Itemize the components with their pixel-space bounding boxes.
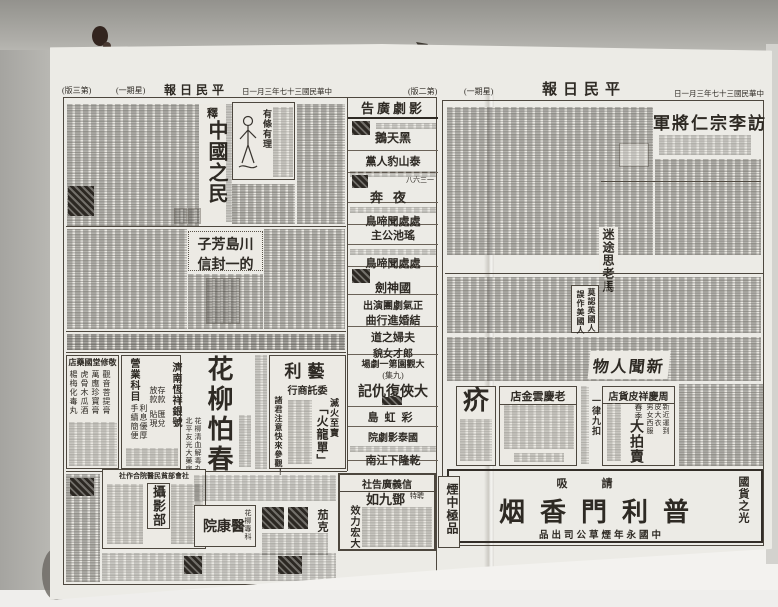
fur-item: 男女西服 bbox=[645, 403, 655, 435]
cigarette-maker: 中國永年煙草公司出品 bbox=[489, 527, 714, 541]
theater-listing: 國神劍 bbox=[348, 267, 438, 295]
right-newspaper-title: 平民日報 bbox=[542, 78, 626, 99]
vd-maker: 北平友光大藥房 bbox=[184, 417, 194, 473]
coop-dept: 攝影部 bbox=[147, 483, 170, 529]
letter-headline-box: 川島芳子 的一封信 bbox=[188, 231, 263, 271]
jacket-text bbox=[262, 533, 328, 555]
body-text bbox=[255, 355, 267, 469]
theater-listing: 泰山豹人黨 bbox=[348, 151, 438, 173]
section-rule bbox=[445, 273, 763, 274]
left-masthead: (第三版) (星期一) 平民日報 中華民國三十七年三月一日 bbox=[60, 82, 438, 96]
fur-store-title: 周慶祥皮貨店 bbox=[603, 388, 674, 404]
theater-listing: 處處聞啼鳥 bbox=[348, 245, 438, 267]
right-weekday: (星期一) bbox=[464, 86, 493, 97]
ad-logo bbox=[184, 556, 202, 574]
bank-item: 放款 bbox=[148, 386, 159, 404]
theater-listing: 瑤池公主 bbox=[348, 225, 438, 245]
pharmacy-product: 虎骨木瓜酒 bbox=[79, 370, 90, 415]
bank-text bbox=[126, 448, 178, 466]
scabies-ad: 疥 bbox=[456, 386, 496, 466]
ad-logo bbox=[70, 478, 94, 496]
body-text bbox=[194, 475, 336, 501]
photo-background-left bbox=[0, 50, 54, 607]
cathay-title: 乾隆下江南 bbox=[350, 452, 436, 468]
left-weekday: (星期一) bbox=[116, 85, 145, 96]
vd-text bbox=[239, 415, 251, 467]
fur-store-ad: 周慶祥皮貨店 新近運到 皮大衣 男女西服 春季 大拍賣 bbox=[602, 386, 675, 466]
name-tag bbox=[188, 208, 201, 224]
headline-column: 釋 中國之民 bbox=[200, 104, 226, 222]
right-page: 訪李宗仁將軍 迷途思老馬 莫認英國人 誤作美國人 新聞人物 疥 老慶雲金店 bbox=[442, 100, 764, 546]
feature-column-header: 新聞人物 bbox=[588, 351, 671, 379]
section-rule bbox=[66, 226, 346, 227]
boxed-insert bbox=[619, 143, 649, 167]
bank-ad: 濟南恆祥銀號 營業科目 存款 匯兌 放款 貼現 利息優厚 手續簡便 bbox=[121, 355, 181, 469]
fur-sale-big: 大拍賣 bbox=[625, 419, 645, 464]
strip-text bbox=[581, 386, 589, 464]
pharmacy-product: 觀音菩提膏 bbox=[101, 370, 112, 415]
body-text bbox=[447, 277, 761, 333]
cigarette-slogan-left-box: 煙中極品 bbox=[438, 476, 460, 548]
letter-headline-line1: 川島芳子 bbox=[189, 234, 262, 254]
cartoon-text bbox=[273, 107, 293, 177]
body-text bbox=[297, 104, 345, 224]
consignment-ad: 藝利 委託商行 滅火至寶 「火龍單」 諸君注意快來參觀！ bbox=[269, 355, 346, 469]
theater-listing: 處處聞啼鳥 bbox=[348, 203, 438, 225]
scabies-text bbox=[460, 419, 492, 461]
clinic-title: 醫康院 bbox=[203, 516, 245, 536]
cigarette-invite: 請吸 bbox=[489, 475, 714, 491]
coop-photo-ad: 社會部貧民醫院合作社 攝影部 bbox=[102, 469, 206, 549]
ad-logo bbox=[288, 507, 308, 529]
theater-cathay-listing: 國泰影劇院 乾隆下江南 bbox=[348, 427, 438, 461]
gold-store-ad: 老慶雲金店 bbox=[499, 386, 577, 466]
subhead-text bbox=[659, 135, 751, 155]
subhead-line1: 莫認英國人 bbox=[586, 288, 597, 333]
clinic-ad: 花柳專科 醫康院 bbox=[194, 505, 256, 547]
coop-title: 社會部貧民醫院合作社 bbox=[103, 471, 205, 481]
jacket-ad: 茄克 bbox=[260, 505, 334, 557]
bank-section: 營業科目 bbox=[126, 358, 141, 402]
body-text bbox=[67, 229, 187, 329]
body-text bbox=[232, 184, 295, 224]
theater-logo bbox=[352, 121, 370, 135]
photo-illustration bbox=[68, 186, 94, 216]
headline-prefix: 釋 bbox=[207, 105, 218, 121]
name-tag bbox=[174, 208, 187, 224]
left-newspaper-title: 平民日報 bbox=[164, 81, 228, 98]
cigarette-brand: 普利門香烟 bbox=[489, 492, 714, 529]
coop-text bbox=[107, 484, 143, 544]
vd-medicine-ad: 花柳怕春 花柳清血解毒丸 北平友光大藥房 bbox=[183, 355, 253, 469]
bank-item: 貼現 bbox=[148, 410, 159, 428]
gold-store-text bbox=[504, 405, 574, 449]
theater-listing: 正氣劇團演出 結婚進行曲 bbox=[348, 295, 438, 327]
theater-logo bbox=[352, 175, 368, 188]
subhead-box: 莫認英國人 誤作美國人 bbox=[571, 285, 599, 333]
bank-title: 濟南恆祥銀號 bbox=[168, 362, 183, 428]
cathay-venue: 國泰影劇院 bbox=[350, 429, 436, 444]
letter-headline-line2: 的一封信 bbox=[189, 254, 262, 274]
cigarette-slogan-right: 國貨之光 bbox=[735, 476, 751, 524]
section-rule bbox=[66, 352, 346, 353]
left-date: 中華民國三十七年三月一日 bbox=[242, 86, 332, 97]
theater-listing: 夫婦之道 郎才女貌 bbox=[348, 327, 438, 355]
feature-episodes: (九集) bbox=[350, 370, 436, 381]
theater-section-header: 影劇廣告 bbox=[348, 98, 438, 119]
cartoon-illustration bbox=[237, 113, 259, 171]
pharmacy-ad: 敬修堂國藥店 觀音菩提膏 萬應珍寶膏 虎骨木瓜酒 楊梅化毒丸 bbox=[66, 355, 119, 469]
consignment-product: 「火龍單」 bbox=[314, 402, 331, 467]
section-rule bbox=[66, 331, 346, 332]
theater-phone: 一三六八 bbox=[406, 175, 434, 185]
pharmacy-text bbox=[69, 422, 117, 466]
theater-logo bbox=[352, 269, 370, 283]
gold-store-phone bbox=[514, 453, 564, 462]
discount-strip-ad: 一律九扣 bbox=[580, 386, 600, 466]
cigarette-ad: 國貨之光 請吸 普利門香烟 中國永年煙草公司出品 bbox=[447, 469, 763, 543]
pharmacy-title: 敬修堂國藥店 bbox=[67, 357, 118, 368]
consignment-name: 藝利 bbox=[270, 357, 345, 382]
boxed-insert bbox=[206, 278, 240, 324]
right-masthead: (第二版) (星期一) 平民日報 中華民國三十七年三月一日 bbox=[400, 80, 768, 98]
fur-text bbox=[607, 403, 621, 461]
ad-logo bbox=[278, 556, 302, 574]
jacket-title: 茄克 bbox=[314, 509, 330, 533]
theater-listing: 黑天鵝 bbox=[348, 119, 438, 151]
scabies-title: 疥 bbox=[457, 387, 495, 416]
lead-headline: 訪李宗仁將軍 bbox=[653, 109, 767, 134]
cartoon-box: 有條有理 bbox=[232, 102, 295, 180]
classified-row bbox=[67, 334, 345, 350]
vd-product: 花柳清血解毒丸 bbox=[193, 417, 203, 473]
theater-feature-listing: 大觀園第一劇場 (九集) 大俠復仇記 bbox=[348, 355, 438, 407]
newspaper-photo: (第三版) (星期一) 平民日報 中華民國三十七年三月一日 (第二版) (星期一… bbox=[0, 0, 778, 607]
body-text bbox=[264, 229, 345, 329]
ad-logo bbox=[262, 507, 284, 529]
theater-listing: 一三六八 夜奔 bbox=[348, 173, 438, 203]
subhead-line2: 誤作美國人 bbox=[575, 290, 586, 335]
bank-feature: 手續簡便 bbox=[129, 404, 140, 440]
theater-listing: 彩虹島 bbox=[348, 407, 438, 427]
theater-logo bbox=[382, 397, 402, 405]
section-rule bbox=[601, 181, 761, 182]
left-page: 釋 中國之民 有條有理 bbox=[63, 97, 437, 585]
consignment-subname: 委託商行 bbox=[270, 382, 345, 397]
right-date: 中華民國三十七年三月一日 bbox=[674, 88, 764, 99]
cigarette-slogan-left: 煙中極品 bbox=[444, 483, 461, 535]
pharmacy-product: 萬應珍寶膏 bbox=[90, 370, 101, 415]
body-text bbox=[679, 384, 763, 466]
feature-venue: 大觀園第一劇場 bbox=[350, 357, 436, 370]
gold-store-title: 老慶雲金店 bbox=[500, 388, 576, 405]
theater-ads-column: 影劇廣告 黑天鵝 泰山豹人黨 一三六八 夜奔 處處聞啼鳥 bbox=[348, 98, 438, 586]
right-page-label: (第二版) bbox=[408, 86, 437, 97]
body-text bbox=[655, 159, 761, 255]
left-page-label: (第三版) bbox=[62, 85, 91, 96]
consignment-closing: 諸君注意快來參觀！ bbox=[273, 396, 284, 477]
newspaper-spread: (第三版) (星期一) 平民日報 中華民國三十七年三月一日 (第二版) (星期一… bbox=[50, 44, 772, 600]
consignment-text bbox=[288, 400, 312, 464]
vd-slogan: 花柳怕春 bbox=[205, 355, 231, 475]
pharmacy-product: 楊梅化毒丸 bbox=[68, 370, 79, 415]
